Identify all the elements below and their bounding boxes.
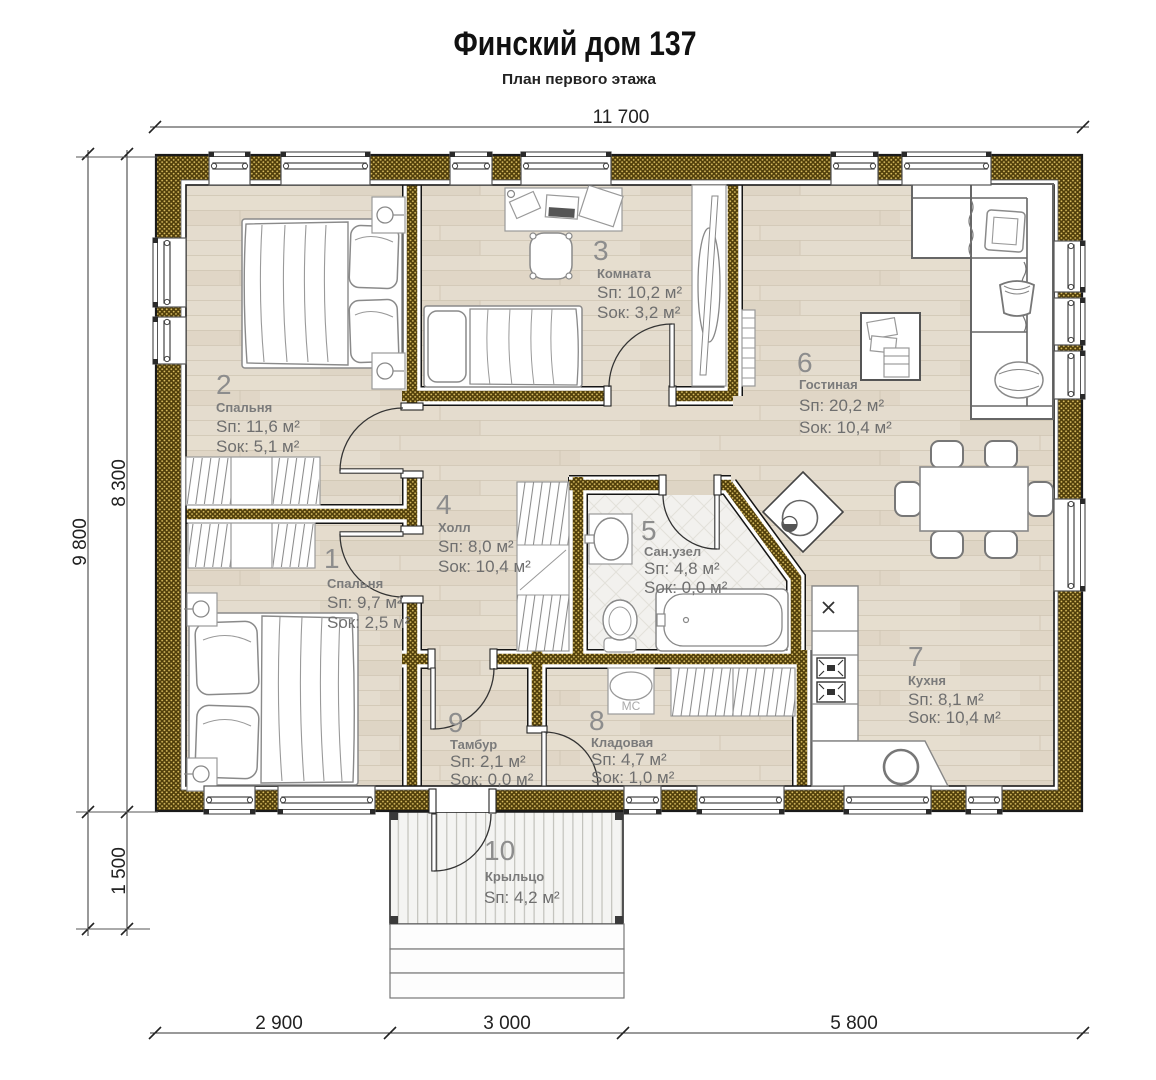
svg-text:Sп: 9,7 м²: Sп: 9,7 м² (327, 593, 403, 612)
svg-text:Финский дом 137: Финский дом 137 (454, 25, 697, 63)
svg-text:4: 4 (436, 489, 452, 520)
svg-text:Sп: 4,7 м²: Sп: 4,7 м² (591, 750, 667, 769)
svg-text:5 800: 5 800 (830, 1013, 878, 1034)
svg-text:Sок: 10,4 м²: Sок: 10,4 м² (438, 557, 531, 576)
svg-text:Sок: 10,4 м²: Sок: 10,4 м² (908, 708, 1001, 727)
svg-text:Sп: 8,1 м²: Sп: 8,1 м² (908, 690, 984, 709)
svg-text:Sок: 0,0 м²: Sок: 0,0 м² (644, 578, 728, 597)
svg-text:Sок: 3,2 м²: Sок: 3,2 м² (597, 303, 681, 322)
svg-text:Sп: 4,8 м²: Sп: 4,8 м² (644, 559, 720, 578)
svg-text:Холл: Холл (438, 520, 471, 535)
svg-text:Sок: 1,0 м²: Sок: 1,0 м² (591, 768, 675, 787)
svg-text:План первого этажа: План первого этажа (502, 71, 657, 88)
svg-text:3 000: 3 000 (483, 1013, 531, 1034)
svg-text:Кухня: Кухня (908, 673, 946, 688)
svg-text:Sок: 2,5 м²: Sок: 2,5 м² (327, 613, 411, 632)
svg-text:Кладовая: Кладовая (591, 735, 653, 750)
svg-text:7: 7 (908, 641, 924, 672)
svg-text:МС: МС (622, 699, 641, 713)
svg-text:Sок: 10,4 м²: Sок: 10,4 м² (799, 418, 892, 437)
svg-text:1 500: 1 500 (109, 847, 130, 895)
svg-text:2: 2 (216, 369, 232, 400)
svg-text:9 800: 9 800 (70, 518, 91, 566)
svg-text:Sп: 8,0 м²: Sп: 8,0 м² (438, 537, 514, 556)
svg-text:Sп: 20,2 м²: Sп: 20,2 м² (799, 396, 884, 415)
svg-text:Комната: Комната (597, 266, 652, 281)
svg-text:Sп: 2,1 м²: Sп: 2,1 м² (450, 752, 526, 771)
svg-text:11 700: 11 700 (593, 107, 650, 128)
svg-text:1: 1 (324, 543, 340, 574)
svg-text:Sок: 0,0 м²: Sок: 0,0 м² (450, 770, 534, 789)
svg-text:9: 9 (448, 707, 464, 738)
svg-text:Sп: 10,2 м²: Sп: 10,2 м² (597, 283, 682, 302)
svg-text:8: 8 (589, 705, 605, 736)
svg-text:Спальня: Спальня (327, 576, 383, 591)
svg-text:8 300: 8 300 (109, 459, 130, 507)
svg-text:Спальня: Спальня (216, 400, 272, 415)
svg-text:Тамбур: Тамбур (450, 737, 497, 752)
svg-text:6: 6 (797, 347, 813, 378)
svg-text:5: 5 (641, 515, 657, 546)
svg-text:10: 10 (484, 835, 515, 866)
svg-text:Sок: 5,1 м²: Sок: 5,1 м² (216, 437, 300, 456)
svg-text:2 900: 2 900 (255, 1013, 303, 1034)
svg-text:Сан.узел: Сан.узел (644, 544, 701, 559)
svg-text:Sп: 11,6 м²: Sп: 11,6 м² (216, 417, 300, 436)
svg-text:3: 3 (593, 235, 609, 266)
svg-text:Крыльцо: Крыльцо (485, 869, 544, 884)
svg-text:Sп: 4,2 м²: Sп: 4,2 м² (484, 888, 560, 907)
svg-text:Гостиная: Гостиная (799, 377, 858, 392)
